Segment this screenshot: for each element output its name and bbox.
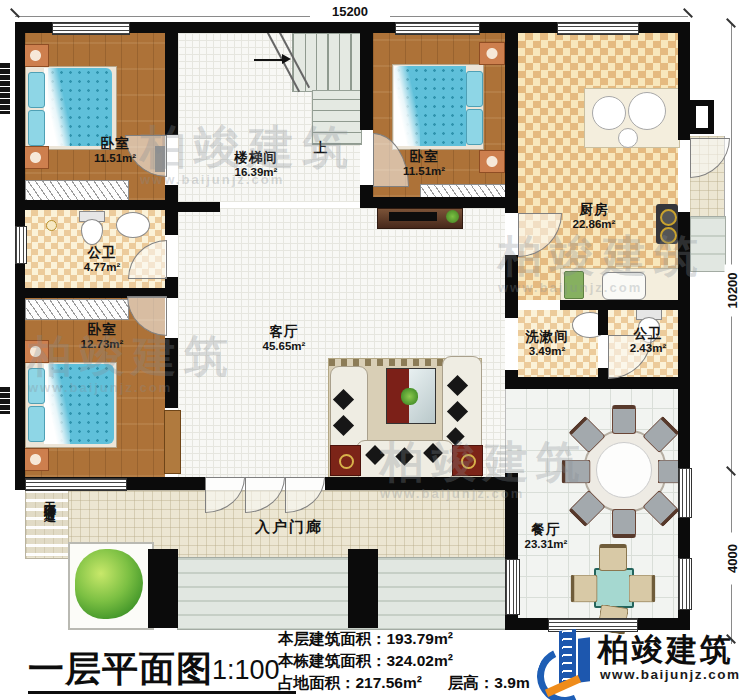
kitchen-basin xyxy=(592,96,626,130)
room-name: 入户门廊 xyxy=(230,518,348,535)
room-area: 11.51m² xyxy=(85,152,145,165)
window xyxy=(557,22,639,35)
tea-chair xyxy=(571,575,598,603)
tree-icon xyxy=(75,549,143,619)
pillow xyxy=(28,110,45,146)
burner-icon xyxy=(660,227,677,244)
room-name: 卧室 xyxy=(85,136,145,152)
burner-icon xyxy=(660,209,677,226)
room-label-bedroom1: 卧室 11.51m² xyxy=(85,136,145,165)
room-area: 45.65m² xyxy=(252,340,316,353)
floor-plan-page: 上 xyxy=(0,0,750,700)
dimension-right-lower-value: 4000 xyxy=(725,533,740,585)
stat-value: 3.9m xyxy=(494,674,529,691)
room-area: 4.77m² xyxy=(70,261,134,274)
kitchen-basin xyxy=(628,92,666,130)
room-name: 洗漱间 xyxy=(514,329,580,345)
dining-chair xyxy=(612,405,636,434)
side-table xyxy=(330,445,361,476)
pillow xyxy=(28,72,45,108)
stair-direction-line xyxy=(254,59,282,61)
nightstand xyxy=(479,42,505,65)
area-statistics: 本层建筑面积：193.79m² 本栋建筑面积：324.02m² 占地面积：217… xyxy=(278,628,530,694)
gold-ring-icon xyxy=(461,454,476,469)
room-label-bathroom2: 公卫 2.43m² xyxy=(616,326,680,355)
nightstand xyxy=(479,150,505,173)
wall-segment xyxy=(165,210,178,235)
brand-name: 柏竣建筑 xyxy=(598,629,734,671)
kitchen-sink xyxy=(602,272,646,300)
wall-segment xyxy=(560,300,678,310)
bed-sheet-fold xyxy=(44,68,70,146)
room-label-washroom: 洗漱间 3.49m² xyxy=(514,329,580,358)
wardrobe-bedroom1 xyxy=(25,180,129,201)
pillow xyxy=(466,109,483,145)
room-area: 23.31m² xyxy=(514,538,578,551)
nightstand xyxy=(22,448,49,471)
gold-ring-icon xyxy=(339,454,354,469)
window xyxy=(395,22,480,35)
stat-value: 217.56m² xyxy=(356,674,422,691)
room-label-bedroom3: 卧室 12.73m² xyxy=(70,322,134,351)
flue-niche xyxy=(690,100,714,134)
room-area: 11.51m² xyxy=(394,165,454,178)
stat-value: 324.02m² xyxy=(387,652,453,669)
room-label-stairwell: 楼梯间 16.39m² xyxy=(224,150,288,179)
tree-planter xyxy=(68,542,154,630)
stair-flight-lower xyxy=(312,90,362,145)
nightstand xyxy=(22,44,49,67)
stair-flight-upper xyxy=(292,33,362,92)
window xyxy=(505,559,520,615)
floor-transition-line xyxy=(505,387,506,473)
tea-chair xyxy=(629,575,656,603)
nightstand xyxy=(22,146,49,169)
cutting-board xyxy=(564,271,584,299)
open-door-leaf xyxy=(164,410,181,474)
plan-title: 一层平面图 xyxy=(28,645,213,694)
title-underline xyxy=(28,691,296,694)
room-area: 22.86m² xyxy=(564,218,624,231)
porch-column xyxy=(148,549,178,628)
wall-segment xyxy=(360,197,518,208)
nightstand xyxy=(22,340,49,363)
exterior-window-mark xyxy=(0,62,10,114)
wall-segment xyxy=(505,377,690,389)
dining-chair xyxy=(562,460,591,484)
side-table xyxy=(452,445,483,476)
room-name: 公卫 xyxy=(616,326,680,342)
stat-label: 本栋建筑面积： xyxy=(278,652,387,669)
stat-label: 占地面积： xyxy=(278,674,356,691)
room-area: 12.73m² xyxy=(70,338,134,351)
wall-segment xyxy=(15,200,178,210)
dimension-top-value: 15200 xyxy=(310,4,390,19)
room-name: 客厅 xyxy=(252,324,316,340)
room-label-bathroom1: 公卫 4.77m² xyxy=(70,245,134,274)
tv xyxy=(389,212,437,221)
pillow xyxy=(466,71,483,107)
wall-segment xyxy=(178,202,220,212)
pillow xyxy=(28,406,45,442)
room-label-dining: 餐厅 23.31m² xyxy=(514,522,578,551)
pillow xyxy=(28,368,45,404)
dimension-right-upper-value: 10200 xyxy=(725,265,740,317)
stat-label: 层高： xyxy=(448,674,495,691)
window xyxy=(25,478,127,491)
front-steps xyxy=(177,557,509,630)
stat-row: 本层建筑面积：193.79m² xyxy=(278,628,530,650)
wardrobe-bedroom3 xyxy=(25,299,129,320)
lazy-susan xyxy=(596,442,652,498)
plant-icon xyxy=(446,210,459,223)
room-label-living: 客厅 45.65m² xyxy=(252,324,316,353)
room-name: 餐厅 xyxy=(514,522,578,538)
plan-scale: 1:100 xyxy=(212,655,280,686)
floor-kitchen xyxy=(518,33,678,300)
plant-icon xyxy=(401,388,418,405)
coffee-table xyxy=(386,368,436,424)
logo-building-icon xyxy=(578,637,590,682)
window xyxy=(678,558,692,610)
wall-segment xyxy=(678,22,690,140)
sink-basin xyxy=(116,212,150,238)
room-label-kitchen: 厨房 22.86m² xyxy=(564,202,624,231)
dining-chair xyxy=(612,509,636,538)
room-name: 卧室 xyxy=(394,149,454,165)
room-name: 卧室 xyxy=(70,322,134,338)
wall-segment xyxy=(598,310,608,335)
wall-segment xyxy=(165,288,178,296)
brand-url: www.baijunjz.com xyxy=(600,667,741,682)
window xyxy=(15,226,27,264)
stat-row: 占地面积：217.56m²层高：3.9m xyxy=(278,672,530,694)
bed-sheet-fold xyxy=(44,364,70,444)
wall-segment xyxy=(505,310,518,318)
stat-value: 193.79m² xyxy=(387,630,453,647)
exterior-window-mark xyxy=(0,386,10,414)
stat-row: 本栋建筑面积：324.02m² xyxy=(278,650,530,672)
wall-segment xyxy=(360,33,373,130)
side-steps xyxy=(690,216,726,272)
room-area: 2.43m² xyxy=(616,342,680,355)
wall-segment xyxy=(165,338,178,408)
room-label-porch: 入户门廊 xyxy=(230,518,348,535)
stat-label: 本层建筑面积： xyxy=(278,630,387,647)
room-name: 楼梯间 xyxy=(224,150,288,166)
floor-drain xyxy=(46,220,57,231)
brand-logo: 柏竣建筑 www.baijunjz.com xyxy=(535,626,747,698)
room-name: 公卫 xyxy=(70,245,134,261)
window xyxy=(678,468,692,518)
porch-column xyxy=(348,549,378,628)
tea-chair xyxy=(599,544,627,571)
wall-segment xyxy=(505,33,518,213)
wall-segment xyxy=(505,255,518,310)
stair-arrow-icon xyxy=(282,54,291,64)
window xyxy=(52,22,130,35)
wall-segment xyxy=(325,477,507,490)
room-area: 16.39m² xyxy=(224,166,288,179)
kitchen-basin-small xyxy=(618,128,638,148)
room-area: 3.49m² xyxy=(514,345,580,358)
room-name: 厨房 xyxy=(564,202,624,218)
stair-up-label: 上 xyxy=(308,140,334,156)
bed-sheet-fold xyxy=(394,66,420,146)
wall-segment xyxy=(165,33,178,135)
room-label-ramp: 无障碍通道 xyxy=(40,492,58,566)
room-label-bedroom2: 卧室 11.51m² xyxy=(394,149,454,178)
